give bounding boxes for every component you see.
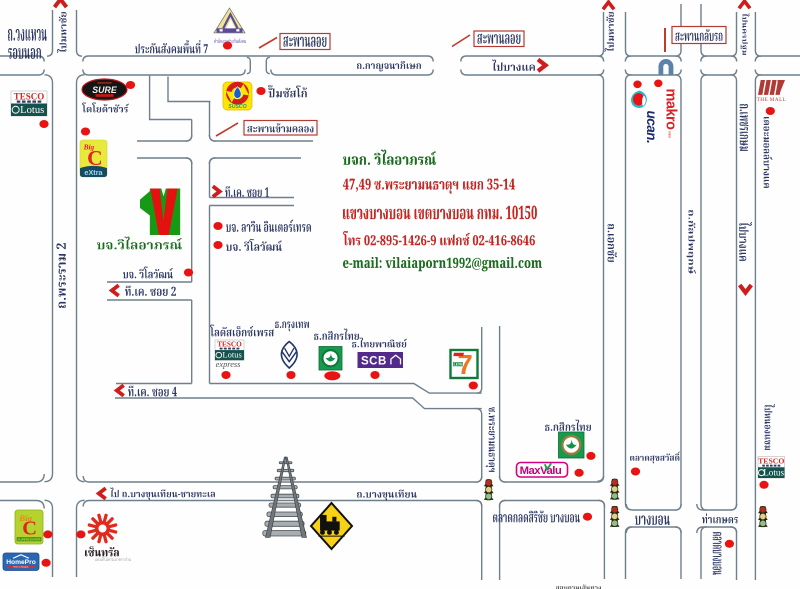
svg-text:Lotus: Lotus (222, 350, 242, 360)
svg-text:TESCO: TESCO (758, 457, 784, 466)
svg-text:makro: makro (663, 89, 679, 131)
svg-text:Lotus: Lotus (763, 467, 784, 477)
svg-text:nnnn: nnnn (668, 131, 672, 138)
svg-text:THE MALL: THE MALL (757, 97, 787, 103)
svg-text:C: C (22, 517, 37, 539)
svg-text:SUPERCENTER: SUPERCENTER (17, 538, 41, 542)
svg-text:express: express (216, 360, 241, 369)
svg-text:Home in Bangkok: Home in Bangkok (13, 567, 28, 569)
svg-text:SCB: SCB (361, 355, 387, 367)
svg-text:SUSCO: SUSCO (228, 104, 246, 110)
svg-text:ELEVEn: ELEVEn (452, 363, 465, 367)
svg-text:ucan.: ucan. (644, 111, 659, 144)
svg-text:TESCO: TESCO (14, 91, 45, 101)
svg-text:MaxValu: MaxValu (520, 465, 562, 477)
svg-text:Lotus: Lotus (20, 105, 44, 116)
svg-text:TESCO: TESCO (217, 341, 242, 349)
svg-text:SURE: SURE (92, 85, 118, 95)
svg-text:eXtra: eXtra (84, 168, 103, 177)
svg-text:HomePro: HomePro (6, 559, 36, 566)
